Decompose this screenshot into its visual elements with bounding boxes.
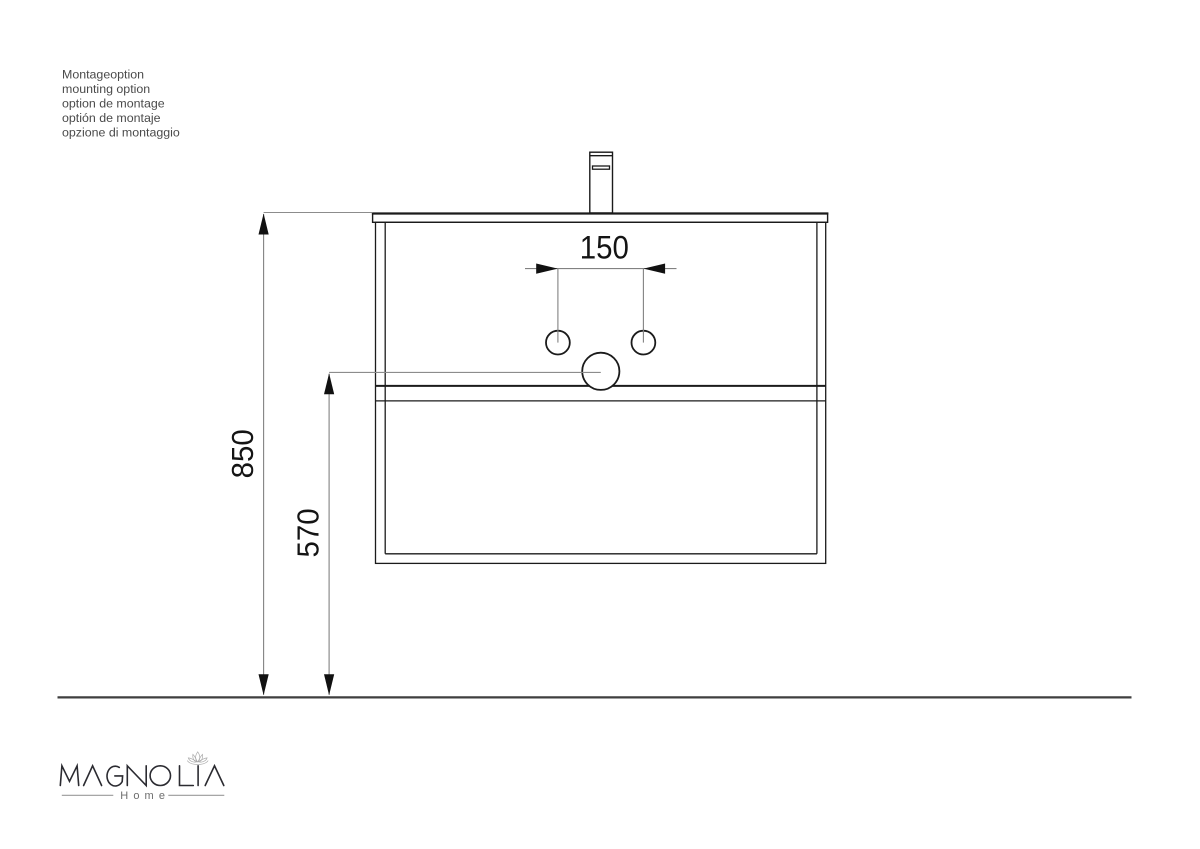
svg-text:opzione di montaggio: opzione di montaggio [62, 126, 180, 140]
svg-text:570: 570 [292, 508, 326, 557]
svg-text:850: 850 [227, 429, 261, 478]
svg-text:Montageoption: Montageoption [62, 67, 144, 81]
svg-text:150: 150 [580, 229, 629, 265]
svg-text:Home: Home [120, 790, 170, 802]
svg-text:option de montage: option de montage [62, 96, 165, 110]
svg-text:optión de montaje: optión de montaje [62, 111, 161, 125]
svg-text:mounting option: mounting option [62, 82, 150, 96]
